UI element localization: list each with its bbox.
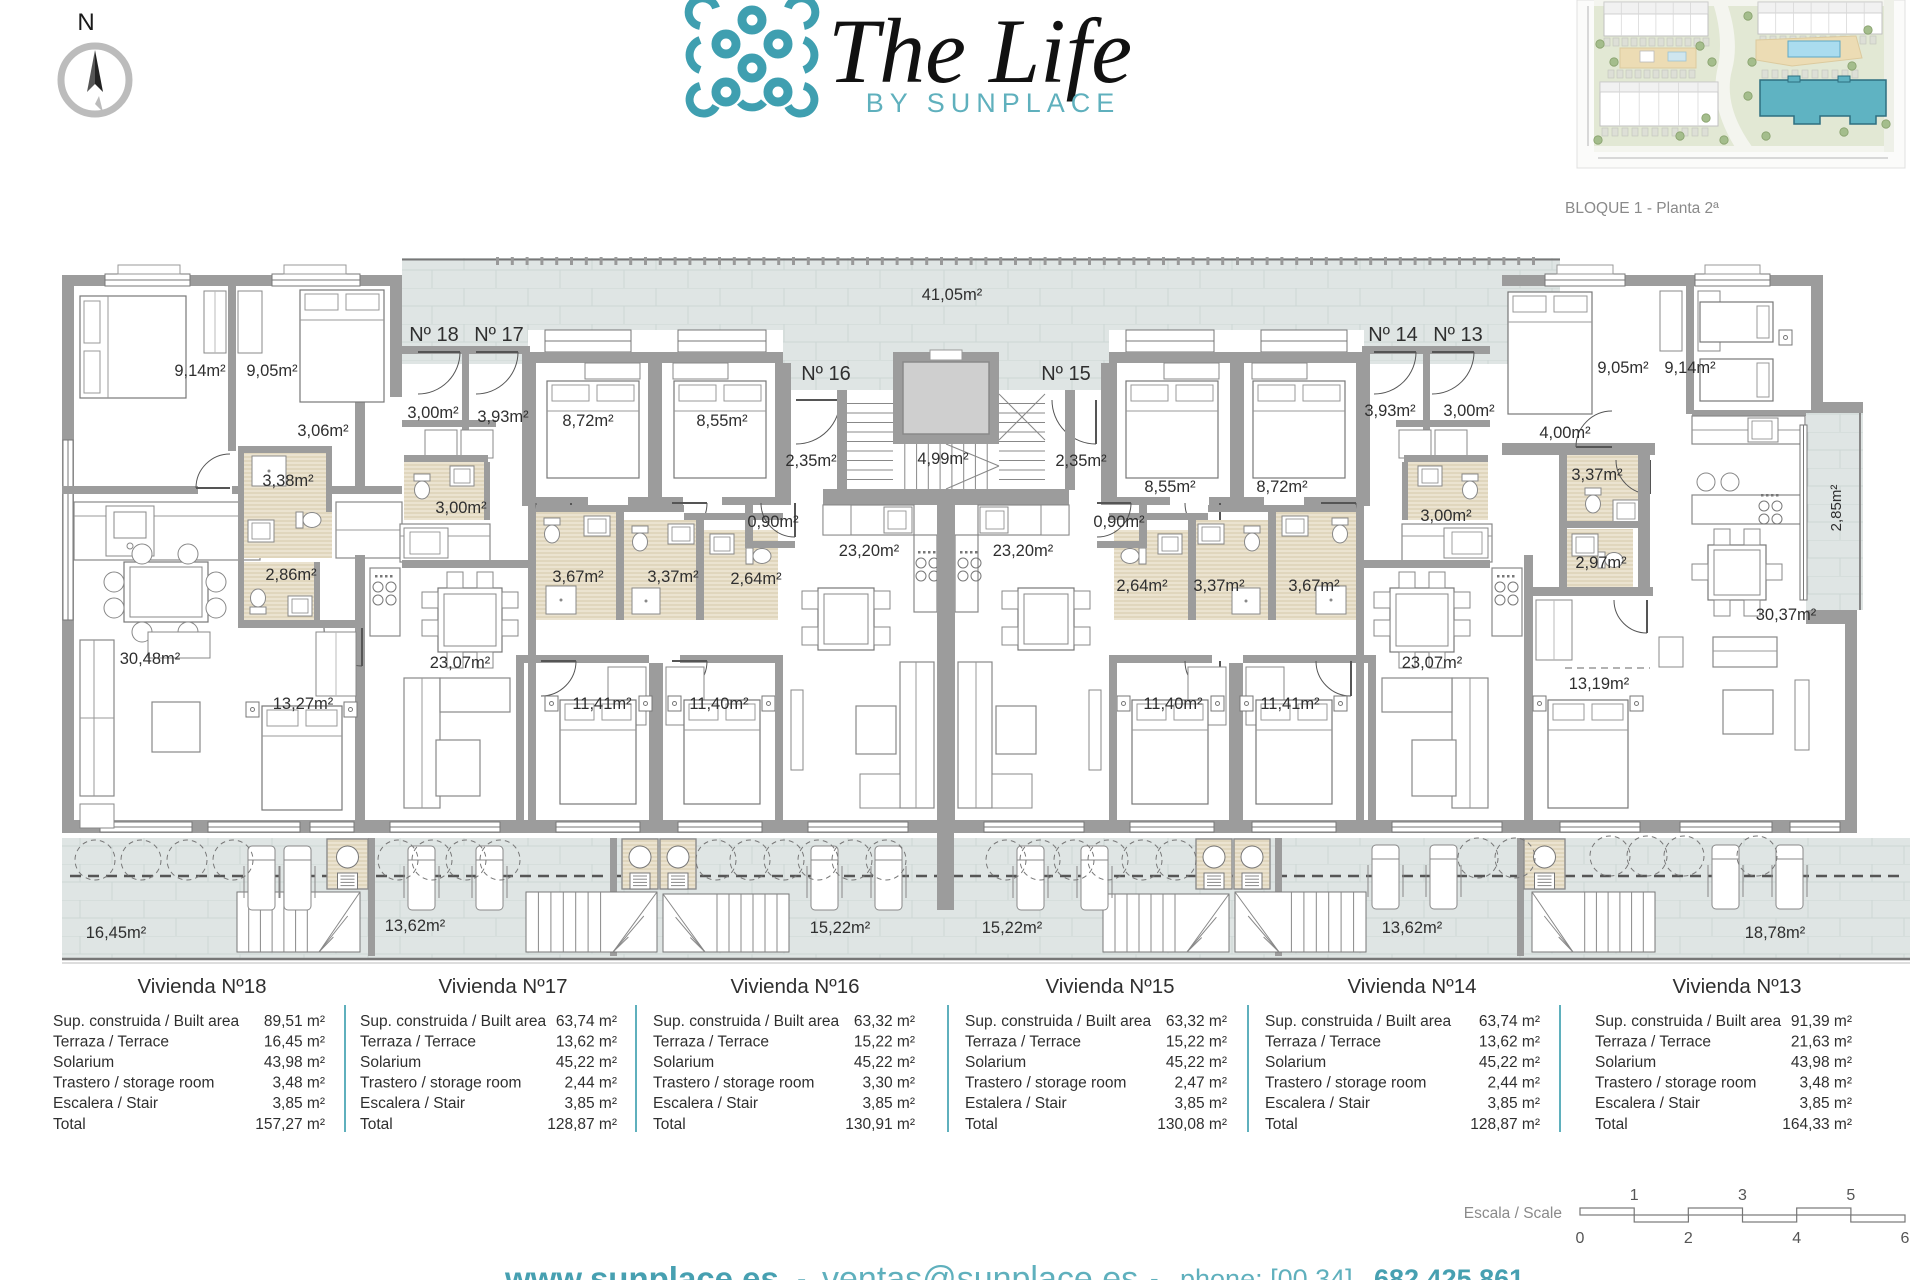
svg-text:8,55m²: 8,55m² bbox=[1144, 478, 1196, 496]
svg-text:Nº 15: Nº 15 bbox=[1041, 363, 1091, 385]
svg-text:2,64m²: 2,64m² bbox=[730, 570, 782, 588]
svg-text:8,55m²: 8,55m² bbox=[696, 412, 748, 430]
svg-text:Solarium: Solarium bbox=[1595, 1054, 1656, 1071]
svg-text:0,90m²: 0,90m² bbox=[747, 513, 799, 531]
svg-text:13,62m²: 13,62m² bbox=[385, 917, 446, 935]
svg-text:130,08 m²: 130,08 m² bbox=[1157, 1116, 1227, 1133]
svg-text:3,00m²: 3,00m² bbox=[435, 499, 487, 517]
svg-text:16,45m²: 16,45m² bbox=[86, 924, 147, 942]
svg-text:www.sunplace.es: www.sunplace.es bbox=[504, 1260, 779, 1280]
svg-text:BLOQUE 1 - Planta 2ª: BLOQUE 1 - Planta 2ª bbox=[1565, 200, 1719, 217]
svg-text:91,39 m²: 91,39 m² bbox=[1791, 1013, 1852, 1030]
svg-text:-: - bbox=[1150, 1263, 1159, 1280]
svg-text:9,05m²: 9,05m² bbox=[246, 362, 298, 380]
svg-text:11,41m²: 11,41m² bbox=[1260, 695, 1320, 713]
svg-text:63,32 m²: 63,32 m² bbox=[854, 1013, 915, 1030]
svg-text:11,41m²: 11,41m² bbox=[572, 695, 632, 713]
svg-text:3,85 m²: 3,85 m² bbox=[564, 1095, 617, 1112]
svg-text:2,97m²: 2,97m² bbox=[1575, 554, 1627, 572]
svg-text:13,62m²: 13,62m² bbox=[1382, 919, 1443, 937]
svg-text:13,27m²: 13,27m² bbox=[273, 695, 334, 713]
svg-text:Sup. construida / Built area: Sup. construida / Built area bbox=[1595, 1013, 1781, 1030]
svg-text:Escala / Scale: Escala / Scale bbox=[1464, 1205, 1562, 1222]
svg-text:23,07m²: 23,07m² bbox=[430, 654, 491, 672]
svg-text:5: 5 bbox=[1846, 1187, 1855, 1204]
svg-text:-: - bbox=[797, 1263, 806, 1280]
svg-text:Terraza / Terrace: Terraza / Terrace bbox=[53, 1034, 169, 1051]
svg-text:2,47 m²: 2,47 m² bbox=[1174, 1075, 1227, 1092]
svg-text:23,20m²: 23,20m² bbox=[993, 542, 1054, 560]
svg-text:Escalera / Stair: Escalera / Stair bbox=[1595, 1095, 1700, 1112]
svg-text:11,40m²: 11,40m² bbox=[1143, 695, 1203, 713]
svg-text:Trastero / storage room: Trastero / storage room bbox=[1595, 1075, 1756, 1092]
svg-text:BY SUNPLACE: BY SUNPLACE bbox=[866, 88, 1121, 118]
svg-text:Total: Total bbox=[653, 1116, 686, 1133]
svg-text:Vivienda Nº14: Vivienda Nº14 bbox=[1347, 975, 1476, 998]
svg-text:0: 0 bbox=[1576, 1230, 1585, 1247]
svg-text:9,14m²: 9,14m² bbox=[1664, 359, 1716, 377]
svg-text:Nº 14: Nº 14 bbox=[1368, 324, 1418, 346]
svg-text:N: N bbox=[77, 9, 94, 36]
svg-text:45,22 m²: 45,22 m² bbox=[556, 1054, 617, 1071]
svg-text:4: 4 bbox=[1792, 1230, 1801, 1247]
svg-text:Total: Total bbox=[1595, 1116, 1628, 1133]
svg-text:130,91 m²: 130,91 m² bbox=[845, 1116, 915, 1133]
svg-text:0,90m²: 0,90m² bbox=[1093, 513, 1145, 531]
svg-text:3: 3 bbox=[1738, 1187, 1747, 1204]
svg-text:Vivienda Nº15: Vivienda Nº15 bbox=[1045, 975, 1174, 998]
svg-text:Sup. construida / Built area: Sup. construida / Built area bbox=[965, 1013, 1151, 1030]
svg-text:Solarium: Solarium bbox=[53, 1054, 114, 1071]
svg-text:23,07m²: 23,07m² bbox=[1402, 654, 1463, 672]
svg-text:Total: Total bbox=[1265, 1116, 1298, 1133]
svg-text:13,62 m²: 13,62 m² bbox=[556, 1034, 617, 1051]
svg-text:128,87 m²: 128,87 m² bbox=[547, 1116, 617, 1133]
svg-text:41,05m²: 41,05m² bbox=[922, 286, 983, 304]
svg-text:45,22 m²: 45,22 m² bbox=[1166, 1054, 1227, 1071]
svg-text:3,67m²: 3,67m² bbox=[552, 568, 604, 586]
svg-text:Vivienda Nº18: Vivienda Nº18 bbox=[137, 975, 266, 998]
svg-text:Vivienda Nº16: Vivienda Nº16 bbox=[730, 975, 859, 998]
svg-text:157,27 m²: 157,27 m² bbox=[255, 1116, 325, 1133]
svg-text:Sup. construida / Built area: Sup. construida / Built area bbox=[653, 1013, 839, 1030]
svg-text:15,22m²: 15,22m² bbox=[810, 919, 871, 937]
svg-text:1: 1 bbox=[1630, 1187, 1639, 1204]
svg-text:Estalera / Stair: Estalera / Stair bbox=[965, 1095, 1067, 1112]
svg-text:Escalera / Stair: Escalera / Stair bbox=[1265, 1095, 1370, 1112]
svg-text:Nº 17: Nº 17 bbox=[474, 324, 524, 346]
svg-text:43,98 m²: 43,98 m² bbox=[264, 1054, 325, 1071]
svg-text:Trastero / storage room: Trastero / storage room bbox=[965, 1075, 1126, 1092]
svg-text:3,85 m²: 3,85 m² bbox=[272, 1095, 325, 1112]
svg-text:9,14m²: 9,14m² bbox=[174, 362, 226, 380]
svg-text:45,22 m²: 45,22 m² bbox=[1479, 1054, 1540, 1071]
svg-text:Nº 13: Nº 13 bbox=[1433, 324, 1483, 346]
svg-text:3,48 m²: 3,48 m² bbox=[272, 1075, 325, 1092]
svg-text:8,72m²: 8,72m² bbox=[562, 412, 614, 430]
svg-text:3,37m²: 3,37m² bbox=[647, 568, 699, 586]
svg-text:The Life: The Life bbox=[828, 0, 1132, 102]
svg-text:3,37m²: 3,37m² bbox=[1193, 577, 1245, 595]
svg-text:Sup. construida / Built area: Sup. construida / Built area bbox=[360, 1013, 546, 1030]
svg-text:2,44 m²: 2,44 m² bbox=[564, 1075, 617, 1092]
svg-text:2,35m²: 2,35m² bbox=[785, 452, 837, 470]
svg-text:15,22 m²: 15,22 m² bbox=[854, 1034, 915, 1051]
svg-text:2,85m²: 2,85m² bbox=[1828, 485, 1845, 532]
svg-text:Trastero / storage room: Trastero / storage room bbox=[53, 1075, 214, 1092]
svg-text:Escalera / Stair: Escalera / Stair bbox=[653, 1095, 758, 1112]
svg-text:3,06m²: 3,06m² bbox=[297, 422, 349, 440]
svg-text:Terraza / Terrace: Terraza / Terrace bbox=[360, 1034, 476, 1051]
svg-text:ventas@sunplace.es: ventas@sunplace.es bbox=[822, 1260, 1138, 1280]
svg-text:Vivienda Nº13: Vivienda Nº13 bbox=[1672, 975, 1801, 998]
svg-text:16,45 m²: 16,45 m² bbox=[264, 1034, 325, 1051]
svg-text:13,19m²: 13,19m² bbox=[1569, 675, 1630, 693]
svg-text:Nº 16: Nº 16 bbox=[801, 363, 851, 385]
svg-text:3,85 m²: 3,85 m² bbox=[1799, 1095, 1852, 1112]
svg-text:128,87 m²: 128,87 m² bbox=[1470, 1116, 1540, 1133]
svg-text:18,78m²: 18,78m² bbox=[1745, 924, 1806, 942]
svg-text:3,67m²: 3,67m² bbox=[1288, 577, 1340, 595]
svg-text:Escalera / Stair: Escalera / Stair bbox=[53, 1095, 158, 1112]
svg-text:2,35m²: 2,35m² bbox=[1055, 452, 1107, 470]
svg-text:3,37m²: 3,37m² bbox=[1571, 466, 1623, 484]
svg-text:3,85 m²: 3,85 m² bbox=[862, 1095, 915, 1112]
svg-text:2,86m²: 2,86m² bbox=[265, 566, 317, 584]
svg-text:45,22 m²: 45,22 m² bbox=[854, 1054, 915, 1071]
svg-text:682 425 861: 682 425 861 bbox=[1374, 1264, 1524, 1280]
svg-text:3,93m²: 3,93m² bbox=[1364, 402, 1416, 420]
svg-text:Total: Total bbox=[360, 1116, 393, 1133]
svg-text:15,22 m²: 15,22 m² bbox=[1166, 1034, 1227, 1051]
svg-text:Trastero / storage room: Trastero / storage room bbox=[653, 1075, 814, 1092]
svg-text:Solarium: Solarium bbox=[360, 1054, 421, 1071]
svg-text:Sup. construida / Built area: Sup. construida / Built area bbox=[1265, 1013, 1451, 1030]
svg-text:8,72m²: 8,72m² bbox=[1256, 478, 1308, 496]
svg-text:6: 6 bbox=[1901, 1230, 1910, 1247]
svg-text:13,62 m²: 13,62 m² bbox=[1479, 1034, 1540, 1051]
svg-text:Trastero / storage room: Trastero / storage room bbox=[360, 1075, 521, 1092]
svg-text:Terraza / Terrace: Terraza / Terrace bbox=[653, 1034, 769, 1051]
svg-text:63,74 m²: 63,74 m² bbox=[556, 1013, 617, 1030]
svg-text:3,48 m²: 3,48 m² bbox=[1799, 1075, 1852, 1092]
svg-text:Solarium: Solarium bbox=[653, 1054, 714, 1071]
svg-text:Total: Total bbox=[53, 1116, 86, 1133]
svg-text:23,20m²: 23,20m² bbox=[839, 542, 900, 560]
svg-text:30,48m²: 30,48m² bbox=[120, 650, 181, 668]
svg-text:4,00m²: 4,00m² bbox=[1539, 424, 1591, 442]
svg-text:3,30 m²: 3,30 m² bbox=[862, 1075, 915, 1092]
svg-text:89,51 m²: 89,51 m² bbox=[264, 1013, 325, 1030]
svg-text:Solarium: Solarium bbox=[1265, 1054, 1326, 1071]
svg-text:Vivienda Nº17: Vivienda Nº17 bbox=[438, 975, 567, 998]
svg-text:15,22m²: 15,22m² bbox=[982, 919, 1043, 937]
svg-text:3,85 m²: 3,85 m² bbox=[1174, 1095, 1227, 1112]
svg-text:Trastero / storage room: Trastero / storage room bbox=[1265, 1075, 1426, 1092]
svg-text:3,00m²: 3,00m² bbox=[1420, 507, 1472, 525]
svg-text:30,37m²: 30,37m² bbox=[1756, 606, 1817, 624]
svg-text:Solarium: Solarium bbox=[965, 1054, 1026, 1071]
svg-text:3,85 m²: 3,85 m² bbox=[1487, 1095, 1540, 1112]
svg-text:Nº 18: Nº 18 bbox=[409, 324, 459, 346]
svg-text:3,93m²: 3,93m² bbox=[477, 408, 529, 426]
svg-text:Terraza / Terrace: Terraza / Terrace bbox=[1265, 1034, 1381, 1051]
svg-text:Terraza / Terrace: Terraza / Terrace bbox=[965, 1034, 1081, 1051]
svg-text:11,40m²: 11,40m² bbox=[689, 695, 749, 713]
svg-text:43,98 m²: 43,98 m² bbox=[1791, 1054, 1852, 1071]
svg-text:2: 2 bbox=[1684, 1230, 1693, 1247]
svg-text:164,33 m²: 164,33 m² bbox=[1782, 1116, 1852, 1133]
svg-text:Sup. construida / Built area: Sup. construida / Built area bbox=[53, 1013, 239, 1030]
svg-text:3,00m²: 3,00m² bbox=[407, 404, 459, 422]
svg-text:phone: [00 34]: phone: [00 34] bbox=[1180, 1264, 1353, 1280]
svg-text:21,63 m²: 21,63 m² bbox=[1791, 1034, 1852, 1051]
svg-text:4,99m²: 4,99m² bbox=[917, 450, 969, 468]
svg-text:Terraza / Terrace: Terraza / Terrace bbox=[1595, 1034, 1711, 1051]
svg-text:3,38m²: 3,38m² bbox=[262, 472, 314, 490]
svg-text:Total: Total bbox=[965, 1116, 998, 1133]
svg-text:9,05m²: 9,05m² bbox=[1597, 359, 1649, 377]
svg-text:63,74 m²: 63,74 m² bbox=[1479, 1013, 1540, 1030]
svg-text:2,64m²: 2,64m² bbox=[1116, 577, 1168, 595]
svg-text:2,44 m²: 2,44 m² bbox=[1487, 1075, 1540, 1092]
svg-text:63,32 m²: 63,32 m² bbox=[1166, 1013, 1227, 1030]
svg-text:3,00m²: 3,00m² bbox=[1443, 402, 1495, 420]
svg-text:Escalera / Stair: Escalera / Stair bbox=[360, 1095, 465, 1112]
